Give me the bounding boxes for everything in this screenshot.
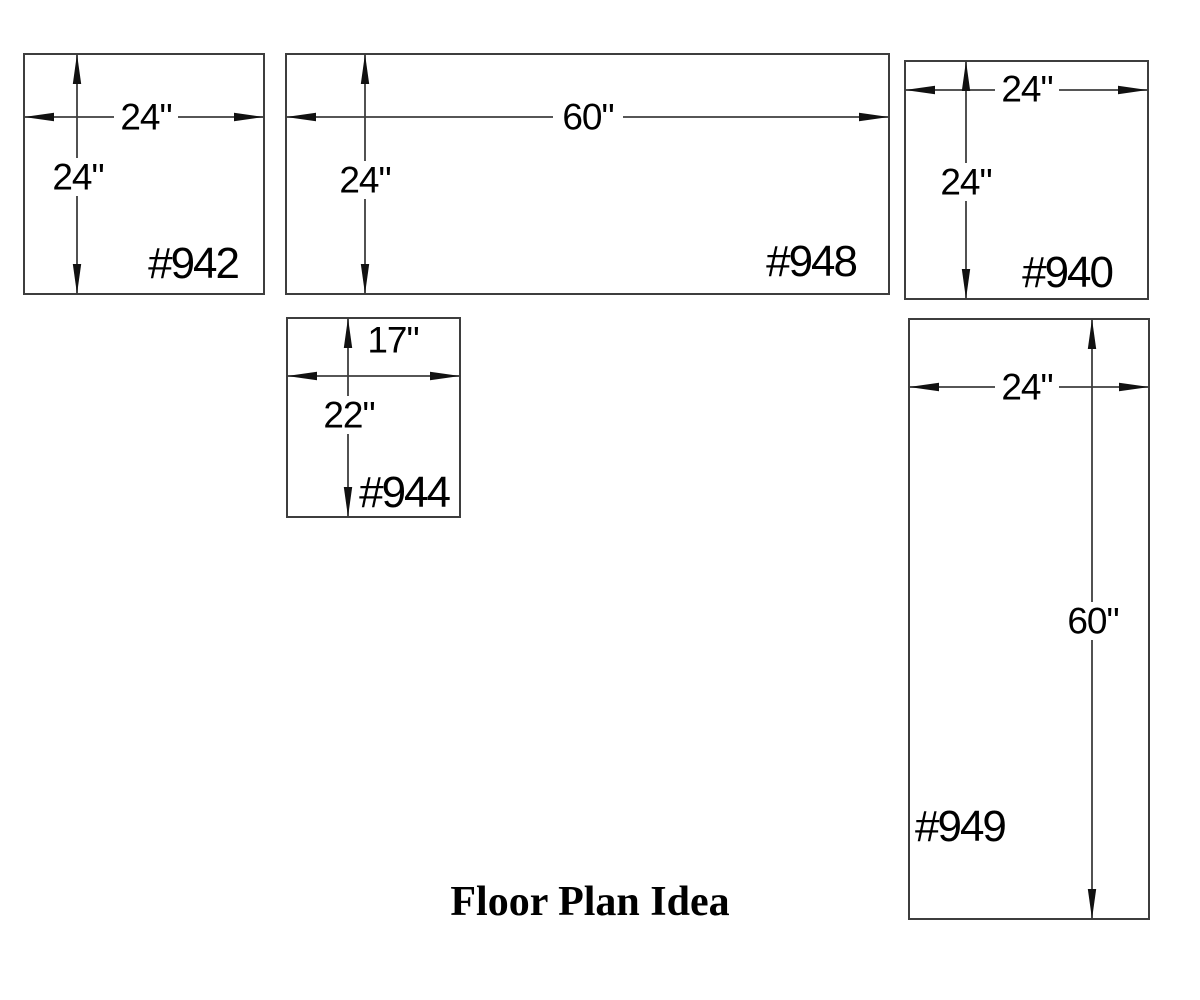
cabinet-944-width-label: 17" — [367, 320, 418, 361]
cabinet-942-width-label: 24" — [120, 97, 171, 138]
diagram-title: Floor Plan Idea — [450, 879, 729, 925]
cabinet-949-height-label: 60" — [1067, 601, 1118, 642]
cabinet-940-id-label: #940 — [1022, 248, 1112, 297]
cabinet-948-height-label: 24" — [339, 160, 390, 201]
cabinet-944: 17" 22" #944 — [287, 318, 460, 517]
cabinet-940-width-label: 24" — [1001, 69, 1052, 110]
cabinet-940: 24" 24" #940 — [905, 61, 1148, 299]
cabinet-949-id-label: #949 — [915, 802, 1005, 851]
cabinet-948: 60" 24" #948 — [286, 54, 889, 294]
cabinet-949: 24" 60" #949 — [909, 319, 1149, 919]
cabinet-942-id-label: #942 — [148, 239, 238, 288]
cabinet-948-id-label: #948 — [766, 237, 856, 286]
cabinet-944-id-label: #944 — [359, 468, 450, 517]
floor-plan-page: 24" 24" #942 60" 24" #948 24" 24" #940 — [0, 0, 1200, 1000]
cabinet-949-width-label: 24" — [1001, 367, 1052, 408]
cabinet-942: 24" 24" #942 — [24, 54, 264, 294]
cabinet-942-height-label: 24" — [52, 157, 103, 198]
cabinet-944-height-label: 22" — [323, 395, 374, 436]
cabinet-940-height-label: 24" — [940, 162, 991, 203]
floor-plan-canvas: 24" 24" #942 60" 24" #948 24" 24" #940 — [0, 0, 1200, 1000]
cabinet-948-width-label: 60" — [562, 97, 613, 138]
